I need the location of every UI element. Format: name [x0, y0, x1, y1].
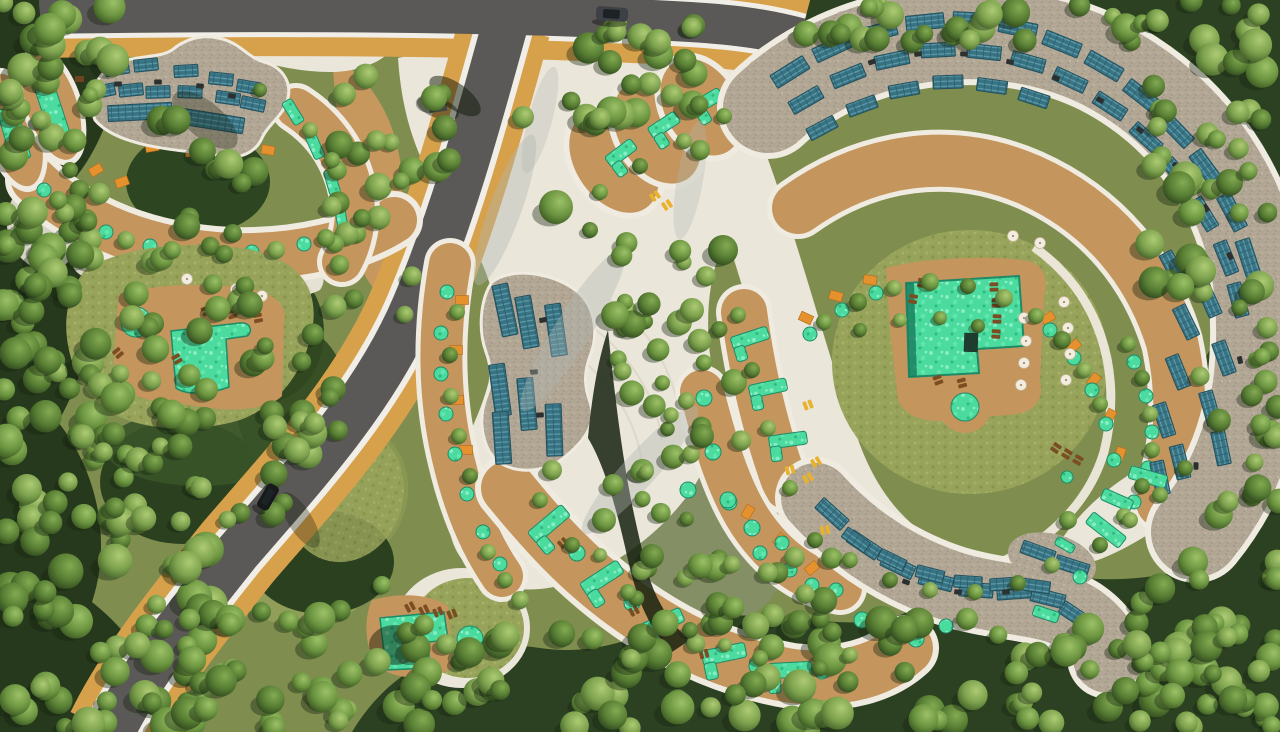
tree — [142, 692, 162, 712]
tree — [690, 96, 709, 115]
tree — [284, 437, 310, 463]
tree — [1142, 75, 1165, 98]
tree — [1059, 511, 1077, 529]
tree — [373, 576, 391, 594]
round-pool — [493, 557, 507, 571]
tree — [17, 196, 48, 227]
tree — [645, 29, 671, 55]
tree — [0, 684, 31, 715]
tree — [96, 44, 129, 77]
tree — [123, 281, 148, 306]
tree — [1241, 384, 1263, 406]
tree — [263, 415, 288, 440]
roof-hatch — [1194, 462, 1199, 470]
tree — [688, 553, 713, 578]
tree — [1226, 101, 1249, 124]
tree — [422, 690, 442, 710]
tree — [1144, 442, 1160, 458]
tree — [302, 323, 324, 345]
tree — [253, 83, 267, 97]
tree — [33, 13, 66, 46]
tree — [1163, 171, 1196, 204]
tree — [304, 413, 326, 435]
tree — [592, 184, 608, 200]
tree — [611, 245, 632, 266]
tree — [1022, 682, 1043, 703]
tree — [532, 492, 548, 508]
round-pool — [37, 183, 51, 197]
tree — [752, 650, 768, 666]
tree — [1231, 299, 1247, 315]
tree — [323, 295, 347, 319]
tree — [213, 149, 243, 179]
solar-panel — [933, 75, 963, 89]
tree — [131, 506, 156, 531]
tree — [324, 152, 340, 168]
tree — [1248, 660, 1270, 682]
round-pool — [753, 546, 767, 560]
tree — [1217, 627, 1238, 648]
tree — [1053, 331, 1071, 349]
tree — [402, 266, 422, 286]
tree — [142, 371, 162, 391]
roof-hatch — [536, 412, 544, 417]
tree — [157, 400, 186, 429]
tree — [365, 173, 392, 200]
tree — [102, 422, 126, 446]
tree — [915, 25, 933, 43]
tree — [760, 420, 776, 436]
tree — [619, 380, 644, 405]
tree — [302, 122, 318, 138]
tree — [449, 304, 465, 320]
tree — [432, 115, 457, 140]
tree — [1228, 138, 1249, 159]
tree — [252, 602, 271, 621]
tree — [480, 544, 496, 560]
tree — [512, 106, 534, 128]
solar-panel — [118, 83, 143, 97]
tree — [511, 591, 529, 609]
tree — [816, 314, 832, 330]
tree — [696, 354, 712, 370]
solar-panel — [146, 86, 170, 99]
tree — [956, 608, 978, 630]
roof-hatch — [114, 82, 122, 87]
tree — [1253, 348, 1270, 365]
tree — [678, 392, 695, 409]
tree — [1152, 487, 1168, 503]
tree — [598, 50, 622, 74]
tree — [321, 388, 340, 407]
tree — [621, 74, 641, 94]
tree — [718, 638, 732, 652]
tree — [292, 352, 311, 371]
tree — [1191, 367, 1210, 386]
tree — [124, 632, 151, 659]
round-pool — [869, 286, 883, 300]
lawn-round-pool — [951, 393, 979, 421]
round-pool — [680, 482, 696, 498]
round-pool — [744, 520, 760, 536]
tree — [542, 460, 562, 480]
tree — [490, 680, 510, 700]
parasol-pole — [1065, 379, 1067, 381]
round-pool — [1099, 417, 1113, 431]
tree — [696, 266, 716, 286]
tree — [173, 213, 200, 240]
tree — [614, 362, 632, 380]
tree — [960, 278, 976, 294]
solar-panel — [174, 64, 199, 77]
tree — [679, 512, 694, 527]
tree — [638, 72, 661, 95]
round-pool — [434, 367, 448, 381]
tree — [155, 620, 174, 639]
tree — [562, 92, 581, 111]
tree — [94, 442, 113, 461]
tree — [864, 26, 890, 52]
tree — [31, 111, 49, 129]
tree — [330, 255, 350, 275]
tree — [639, 464, 654, 479]
tree — [1123, 630, 1152, 659]
tree — [1257, 317, 1278, 338]
tree — [782, 480, 798, 496]
tree — [1134, 478, 1150, 494]
tree — [1120, 336, 1136, 352]
tree — [366, 130, 386, 150]
tree — [1207, 409, 1231, 433]
tree — [29, 400, 61, 432]
awning — [456, 296, 469, 305]
tree — [142, 335, 170, 363]
round-pool — [939, 619, 953, 633]
tree — [1239, 162, 1257, 180]
tree — [205, 665, 237, 697]
tree — [661, 691, 695, 725]
tree — [167, 434, 192, 459]
tree — [353, 64, 378, 89]
tree — [436, 634, 456, 654]
tree — [257, 337, 274, 354]
tree — [701, 697, 721, 717]
tree — [1141, 153, 1166, 178]
tree — [933, 311, 947, 325]
tree — [1146, 10, 1168, 32]
tree — [830, 23, 851, 44]
roof-hatch — [960, 51, 968, 56]
tree — [307, 681, 338, 712]
tree — [194, 696, 218, 720]
tree — [1177, 460, 1193, 476]
round-pool — [1139, 389, 1153, 403]
tree — [1016, 707, 1039, 730]
tree — [100, 382, 132, 414]
tree — [643, 394, 666, 417]
round-pool — [720, 492, 736, 508]
tree — [62, 162, 78, 178]
tree — [837, 671, 858, 692]
tree — [655, 375, 670, 390]
parasol-pole — [1023, 317, 1025, 319]
tree — [708, 235, 738, 265]
awning — [261, 144, 275, 155]
tree — [582, 222, 598, 238]
tree — [661, 84, 683, 106]
round-pool — [448, 447, 462, 461]
roof-hatch — [228, 93, 236, 99]
tree — [1122, 512, 1138, 528]
tree — [1251, 109, 1272, 130]
tree — [336, 661, 362, 687]
round-pool — [439, 407, 453, 421]
round-pool — [460, 487, 474, 501]
tree — [278, 610, 299, 631]
tree — [652, 609, 679, 636]
tree — [260, 460, 287, 487]
tree — [49, 191, 67, 209]
tree — [33, 580, 57, 604]
round-pool — [297, 237, 311, 251]
round-pool — [775, 536, 789, 550]
tree — [267, 241, 285, 259]
tree — [80, 328, 112, 360]
tree — [256, 685, 285, 714]
tree — [1134, 370, 1150, 386]
tree — [922, 582, 938, 598]
tree — [454, 637, 484, 667]
tree — [88, 183, 110, 205]
tree — [39, 511, 63, 535]
tree — [57, 283, 82, 308]
tree — [104, 497, 125, 518]
tree — [989, 626, 1007, 644]
tree — [421, 85, 447, 111]
tree — [328, 711, 348, 731]
round-pool — [696, 390, 712, 406]
tree — [1145, 573, 1175, 603]
tree — [186, 318, 213, 345]
tree — [24, 274, 47, 297]
tree — [821, 697, 854, 730]
screenshot-canvas — [0, 0, 1280, 732]
tree — [304, 602, 336, 634]
tree — [1010, 575, 1026, 591]
roof-hatch — [154, 80, 162, 85]
round-pool — [1061, 471, 1073, 483]
tree — [957, 680, 987, 710]
tree — [396, 306, 413, 323]
tree — [63, 129, 87, 153]
round-pool — [1073, 570, 1087, 584]
tree — [663, 407, 678, 422]
parasol-pole — [1039, 242, 1041, 244]
tree — [1076, 362, 1092, 378]
tree — [621, 649, 640, 668]
tree — [497, 572, 513, 588]
tree — [1135, 229, 1164, 258]
parasol-pole — [1025, 340, 1027, 342]
tree — [1246, 454, 1264, 472]
tree — [178, 646, 206, 674]
parasol-pole — [1069, 353, 1071, 355]
tree — [364, 648, 391, 675]
tree — [651, 503, 671, 523]
tree — [393, 172, 410, 189]
parasol-pole — [261, 295, 263, 297]
tree — [725, 684, 746, 705]
tree — [1217, 491, 1239, 513]
pool-hut — [964, 333, 979, 352]
tree — [218, 613, 241, 636]
tree — [632, 158, 648, 174]
tree — [744, 362, 760, 378]
tree — [353, 209, 371, 227]
tree — [711, 321, 728, 338]
tree — [344, 289, 363, 308]
tree — [1219, 685, 1247, 713]
tree — [592, 508, 616, 532]
tree — [117, 231, 135, 249]
tree — [680, 298, 704, 322]
tree — [451, 428, 467, 444]
car — [592, 6, 629, 28]
tree — [66, 240, 94, 268]
tree — [795, 584, 814, 603]
round-pool — [476, 525, 490, 539]
tree — [581, 627, 603, 649]
tree — [1250, 414, 1271, 435]
solar-panel — [545, 404, 563, 457]
parasol-pole — [1012, 235, 1014, 237]
tree — [70, 424, 94, 448]
tree — [1239, 28, 1272, 61]
tree — [442, 347, 458, 363]
tree — [821, 548, 842, 569]
tree — [682, 17, 702, 37]
tree — [886, 280, 902, 296]
tree — [602, 474, 623, 495]
tree — [634, 491, 650, 507]
tree — [959, 30, 979, 50]
tree — [1142, 406, 1158, 422]
tree — [676, 133, 692, 149]
tree — [1230, 203, 1249, 222]
tree — [189, 138, 216, 165]
tree — [43, 490, 68, 515]
tree — [637, 292, 660, 315]
tree — [894, 662, 915, 683]
tree — [2, 606, 23, 627]
awning — [863, 275, 877, 286]
tree — [664, 661, 691, 688]
tree — [890, 615, 918, 643]
parasol-pole — [1067, 327, 1069, 329]
tree — [640, 544, 664, 568]
tree — [812, 660, 828, 676]
tree — [219, 511, 237, 529]
tree — [1189, 570, 1209, 590]
tree — [1208, 130, 1226, 148]
tree — [669, 240, 691, 262]
tree — [882, 572, 898, 588]
tree — [71, 504, 96, 529]
tree — [742, 613, 769, 640]
tree — [163, 241, 181, 259]
tree — [1050, 635, 1081, 666]
round-pool — [1107, 453, 1121, 467]
tree — [967, 584, 983, 600]
round-pool — [1085, 383, 1099, 397]
tree — [731, 430, 751, 450]
tree — [291, 672, 311, 692]
tree — [12, 474, 42, 504]
tree — [322, 196, 342, 216]
tree — [730, 307, 746, 323]
tree — [722, 597, 744, 619]
tree — [79, 213, 97, 231]
tree — [1167, 273, 1194, 300]
tree — [1080, 660, 1099, 679]
tree — [34, 346, 62, 374]
tree — [111, 364, 129, 382]
tree — [1247, 3, 1269, 25]
tree — [147, 595, 166, 614]
tree — [842, 552, 858, 568]
tree — [1148, 117, 1167, 136]
tree — [1129, 710, 1151, 732]
tree — [414, 615, 434, 635]
round-pool — [1127, 355, 1141, 369]
tree — [462, 468, 478, 484]
parasol-pole — [1020, 384, 1022, 386]
tree — [97, 691, 117, 711]
tree — [758, 563, 778, 583]
tree — [564, 537, 580, 553]
parasol-pole — [1063, 301, 1065, 303]
tree — [190, 477, 211, 498]
tree — [317, 229, 335, 247]
tree — [1044, 557, 1060, 573]
solar-panel — [492, 412, 512, 465]
tree — [601, 301, 629, 329]
tree — [598, 700, 627, 729]
tree — [13, 2, 36, 25]
tree — [179, 609, 201, 631]
parasol-pole — [186, 278, 188, 280]
tree — [716, 108, 732, 124]
tree — [98, 544, 133, 579]
bench — [75, 76, 84, 82]
tree — [1112, 677, 1140, 705]
tree — [548, 620, 575, 647]
tree — [1013, 28, 1037, 52]
round-pool — [434, 326, 448, 340]
tree — [1159, 683, 1185, 709]
parasol-pole — [1023, 362, 1025, 364]
solar-panel — [208, 72, 233, 86]
tree — [82, 87, 98, 103]
solar-panel — [133, 58, 158, 72]
tree — [849, 293, 867, 311]
tree — [90, 642, 111, 663]
tree — [647, 338, 670, 361]
tree — [327, 420, 348, 441]
tree — [971, 319, 985, 333]
tree — [807, 532, 823, 548]
round-pool — [440, 285, 454, 299]
